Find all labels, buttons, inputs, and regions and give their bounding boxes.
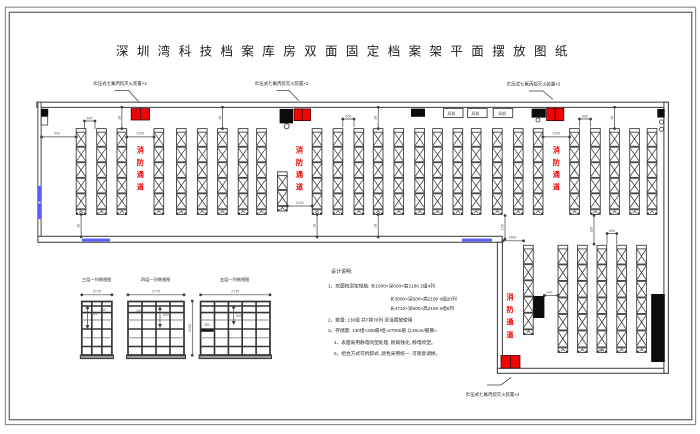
- svg-text:1460: 1460: [509, 236, 517, 240]
- svg-text:风机: 风机: [498, 110, 506, 116]
- svg-text:贮压式七氟丙烷灭火装置×2: 贮压式七氟丙烷灭火装置×2: [507, 81, 561, 88]
- svg-text:350: 350: [204, 323, 210, 327]
- svg-text:消: 消: [296, 146, 303, 155]
- svg-text:2775: 2775: [152, 290, 160, 294]
- svg-text:消: 消: [137, 146, 144, 155]
- svg-text:通: 通: [553, 170, 561, 179]
- svg-text:1200: 1200: [552, 132, 560, 136]
- svg-text:2180: 2180: [188, 324, 192, 332]
- svg-text:600: 600: [163, 313, 169, 317]
- svg-text:道: 道: [553, 182, 561, 191]
- svg-text:2775: 2775: [231, 290, 239, 294]
- svg-text:1200: 1200: [296, 201, 304, 205]
- svg-text:四层一列侧视图: 四层一列侧视图: [141, 276, 170, 283]
- svg-text:2、数量: 130组 共7排70列 灵活摆放使用: 2、数量: 130组 共7排70列 灵活摆放使用: [328, 317, 413, 324]
- svg-text:通: 通: [506, 318, 514, 327]
- svg-text:600: 600: [345, 115, 351, 119]
- svg-text:340: 340: [136, 309, 142, 313]
- svg-text:防: 防: [506, 305, 513, 314]
- svg-text:防: 防: [553, 158, 560, 167]
- svg-text:600: 600: [92, 312, 98, 316]
- svg-text:18: 18: [374, 116, 378, 120]
- svg-text:道: 道: [506, 330, 514, 339]
- svg-text:18: 18: [77, 224, 81, 228]
- svg-text:340: 340: [100, 308, 106, 312]
- svg-text:5、组合方式可拆卸式, 颜色采用统一, 可随意调换。: 5、组合方式可拆卸式, 颜色采用统一, 可随意调换。: [334, 350, 440, 357]
- svg-text:150: 150: [501, 224, 505, 230]
- svg-text:道: 道: [137, 182, 145, 191]
- svg-text:18: 18: [117, 116, 121, 120]
- svg-text:140: 140: [546, 291, 552, 295]
- svg-text:150: 150: [590, 227, 594, 233]
- svg-text:350: 350: [599, 349, 605, 353]
- svg-text:600: 600: [236, 314, 242, 318]
- svg-text:消: 消: [553, 146, 560, 155]
- svg-text:600: 600: [609, 229, 615, 233]
- svg-text:4、表面采用静电喷塑处理, 耐腐蚀化, 静电喷塑。: 4、表面采用静电喷塑处理, 耐腐蚀化, 静电喷塑。: [334, 339, 436, 346]
- svg-text:风机: 风机: [472, 110, 480, 116]
- svg-text:长4710×深600×高2180 6组6列: 长4710×深600×高2180 6组6列: [390, 305, 454, 312]
- svg-text:深圳湾科技档案库房双面固定档案架平面摆放图纸: 深圳湾科技档案库房双面固定档案架平面摆放图纸: [116, 44, 576, 59]
- svg-text:长3000×深600×高2180 4组20列: 长3000×深600×高2180 4组20列: [390, 296, 457, 303]
- svg-text:三层一列侧视图: 三层一列侧视图: [82, 276, 111, 283]
- svg-text:五层一列侧视图: 五层一列侧视图: [220, 276, 249, 283]
- svg-text:18: 18: [313, 224, 317, 228]
- svg-text:风机: 风机: [448, 110, 456, 116]
- svg-text:贮压式七氟丙烷灭火装置×2: 贮压式七氟丙烷灭火装置×2: [255, 80, 309, 87]
- svg-text:道: 道: [296, 182, 304, 191]
- svg-text:3、存储量: 130组×200册/组≈27000册 以30c: 3、存储量: 130组×200册/组≈27000册 以30cm/册算≈: [328, 327, 437, 334]
- svg-text:18: 18: [610, 116, 614, 120]
- svg-text:通: 通: [296, 170, 304, 179]
- svg-text:防: 防: [296, 158, 303, 167]
- svg-text:18: 18: [218, 116, 222, 120]
- svg-text:设计说明:: 设计说明:: [331, 268, 352, 275]
- svg-text:600: 600: [87, 117, 93, 121]
- svg-text:防: 防: [137, 158, 144, 167]
- svg-text:600: 600: [582, 115, 588, 119]
- svg-text:2775: 2775: [93, 290, 101, 294]
- svg-text:1、双面档案架规格: 长1800×深600×高2180 2: 1、双面档案架规格: 长1800×深600×高2180 2组4列: [328, 283, 435, 290]
- svg-text:贮压式七氟丙烷灭火装置×2: 贮压式七氟丙烷灭火装置×2: [466, 391, 520, 398]
- svg-text:1200: 1200: [136, 132, 144, 136]
- svg-text:消: 消: [506, 293, 513, 302]
- svg-text:贮压式七氟丙烷灭火装置×2: 贮压式七氟丙烷灭火装置×2: [94, 80, 148, 87]
- svg-text:900: 900: [54, 132, 60, 136]
- svg-text:通: 通: [137, 170, 145, 179]
- svg-text:18: 18: [374, 224, 378, 228]
